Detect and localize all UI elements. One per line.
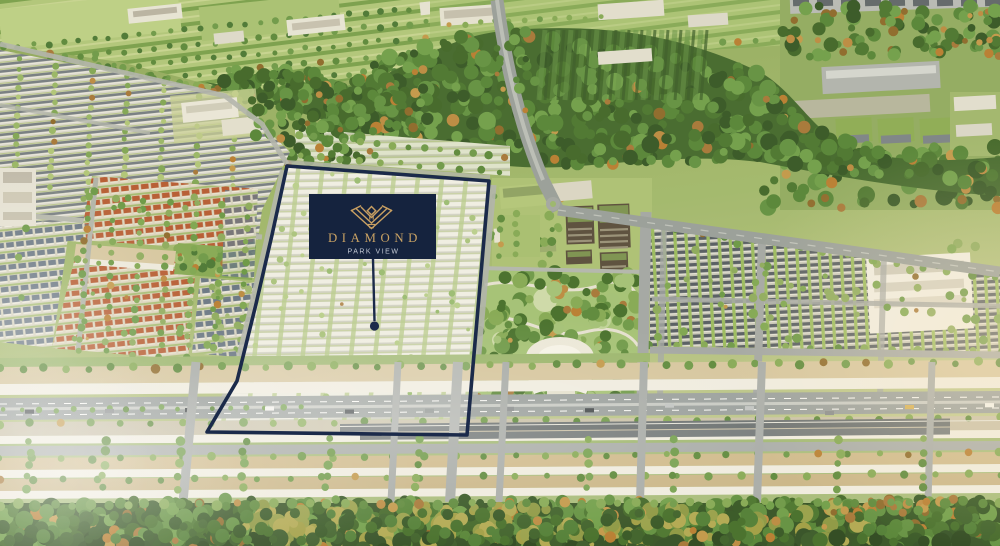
svg-text:DIAMOND: DIAMOND — [328, 231, 422, 245]
svg-text:PARK VIEW: PARK VIEW — [348, 249, 400, 256]
